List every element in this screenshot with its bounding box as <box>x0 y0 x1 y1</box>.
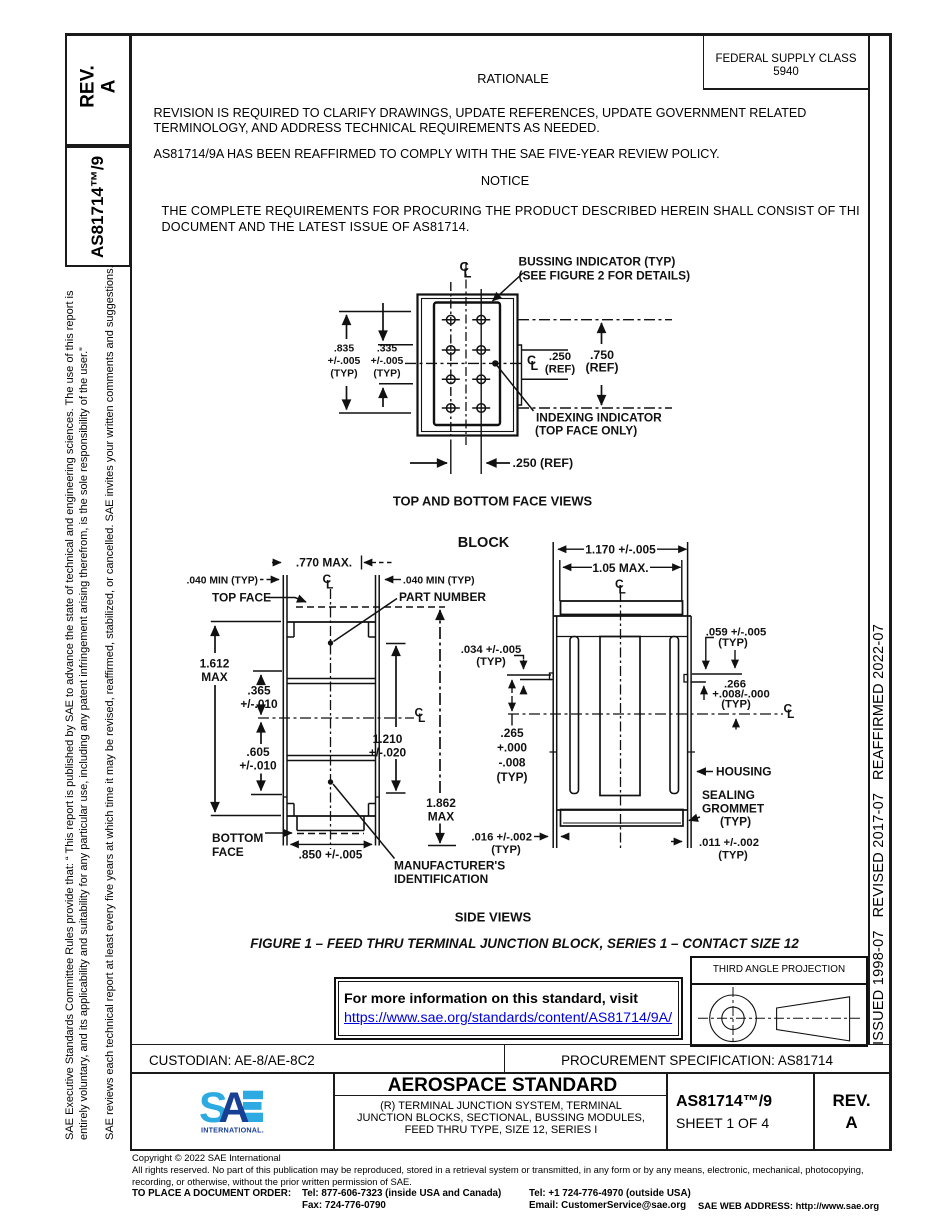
svg-text:(TYP): (TYP) <box>330 369 357 380</box>
svg-text:.016 +/-.002: .016 +/-.002 <box>471 832 532 844</box>
svg-text:+/-.020: +/-.020 <box>369 746 407 760</box>
svg-text:L: L <box>787 707 794 721</box>
svg-text:INDEXING INDICATOR: INDEXING INDICATOR <box>536 411 662 425</box>
svg-text:.034 +/-.005: .034 +/-.005 <box>461 644 522 656</box>
svg-text:1.210: 1.210 <box>373 732 403 746</box>
svg-text:BUSSING INDICATOR (TYP): BUSSING INDICATOR (TYP) <box>519 255 676 269</box>
svg-text:FIGURE 1 – FEED THRU TERMINAL: FIGURE 1 – FEED THRU TERMINAL JUNCTION B… <box>250 936 799 951</box>
svg-text:MAX: MAX <box>201 670 227 684</box>
svg-text:.040 MIN (TYP): .040 MIN (TYP) <box>186 576 258 587</box>
svg-text:+/-.010: +/-.010 <box>239 759 277 773</box>
svg-text:.365: .365 <box>247 684 271 698</box>
svg-text:1.612: 1.612 <box>200 657 230 671</box>
svg-text:.250: .250 <box>549 351 571 363</box>
svg-text:HOUSING: HOUSING <box>716 765 772 779</box>
svg-text:L: L <box>531 359 539 373</box>
svg-text:GROMMET: GROMMET <box>702 802 765 816</box>
svg-text:(REF): (REF) <box>585 361 618 375</box>
svg-text:.770 MAX.: .770 MAX. <box>296 556 352 570</box>
svg-text:(TYP): (TYP) <box>718 850 748 862</box>
svg-text:TOP AND BOTTOM FACE VIEWS: TOP AND BOTTOM FACE VIEWS <box>393 494 593 509</box>
svg-text:.040 MIN (TYP): .040 MIN (TYP) <box>403 576 475 587</box>
svg-text:.335: .335 <box>377 344 397 355</box>
svg-text:(TYP): (TYP) <box>721 699 751 711</box>
svg-text:-.008: -.008 <box>498 755 525 769</box>
svg-text:+.000: +.000 <box>497 741 527 755</box>
svg-text:.605: .605 <box>246 745 270 759</box>
svg-text:1.170 +/-.005: 1.170 +/-.005 <box>585 543 656 557</box>
svg-text:MAX: MAX <box>428 810 454 824</box>
svg-text:(SEE FIGURE 2 FOR DETAILS): (SEE FIGURE 2 FOR DETAILS) <box>519 269 691 283</box>
svg-text:+/-.005: +/-.005 <box>328 356 361 367</box>
svg-text:L: L <box>418 711 425 725</box>
svg-text:FACE: FACE <box>212 845 244 859</box>
svg-text:MANUFACTURER'S: MANUFACTURER'S <box>394 859 505 873</box>
svg-text:L: L <box>464 266 472 281</box>
svg-text:(TOP FACE ONLY): (TOP FACE ONLY) <box>535 424 637 438</box>
svg-text:1.05 MAX.: 1.05 MAX. <box>592 561 648 575</box>
svg-text:.250 (REF): .250 (REF) <box>513 456 574 470</box>
svg-text:PART NUMBER: PART NUMBER <box>399 590 486 604</box>
svg-text:TOP FACE: TOP FACE <box>212 591 271 605</box>
svg-text:SEALING: SEALING <box>702 788 755 802</box>
svg-text:(TYP): (TYP) <box>373 369 400 380</box>
svg-text:.850 +/-.005: .850 +/-.005 <box>299 848 363 862</box>
svg-text:L: L <box>326 578 333 592</box>
svg-text:(TYP): (TYP) <box>496 770 527 784</box>
svg-text:+/-.005: +/-.005 <box>371 356 404 367</box>
svg-text:(REF): (REF) <box>545 364 576 376</box>
svg-text:IDENTIFICATION: IDENTIFICATION <box>394 872 488 886</box>
svg-text:(TYP): (TYP) <box>491 844 521 856</box>
svg-text:BOTTOM: BOTTOM <box>212 831 263 845</box>
svg-text:BLOCK: BLOCK <box>458 535 510 551</box>
svg-text:1.862: 1.862 <box>426 796 456 810</box>
svg-text:(TYP): (TYP) <box>718 637 748 649</box>
svg-text:(TYP): (TYP) <box>720 815 751 829</box>
svg-text:.835: .835 <box>334 344 354 355</box>
svg-text:.265: .265 <box>500 726 524 740</box>
svg-text:L: L <box>619 583 626 597</box>
svg-text:(TYP): (TYP) <box>476 656 506 668</box>
svg-text:+/-.010: +/-.010 <box>240 697 278 711</box>
svg-text:.011 +/-.002: .011 +/-.002 <box>699 837 759 849</box>
svg-text:SIDE VIEWS: SIDE VIEWS <box>455 910 532 925</box>
